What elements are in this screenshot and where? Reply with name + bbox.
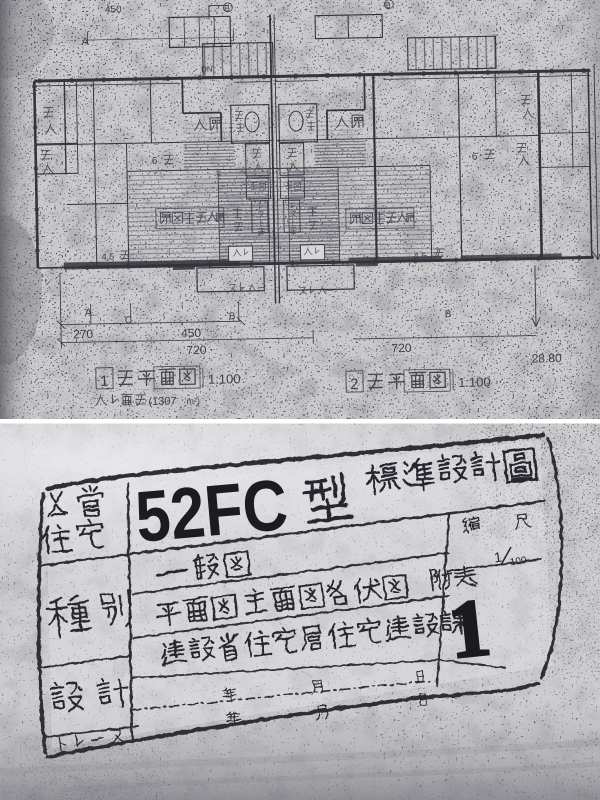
svg-text:m²): m²) <box>186 396 200 406</box>
svg-text:1: 1 <box>100 373 109 390</box>
svg-text:720: 720 <box>186 343 207 357</box>
svg-text:A: A <box>85 307 93 319</box>
svg-text:1:100: 1:100 <box>208 371 241 387</box>
svg-text:4.5: 4.5 <box>102 252 115 262</box>
svg-text:B: B <box>445 309 452 320</box>
svg-text:6: 6 <box>472 152 478 163</box>
svg-text:2: 2 <box>350 376 359 393</box>
svg-text:(1307: (1307 <box>148 395 176 408</box>
svg-text:450: 450 <box>181 326 202 340</box>
svg-text:B: B <box>229 311 236 322</box>
svg-text:52FC: 52FC <box>132 465 290 558</box>
svg-text:DN: DN <box>201 65 213 74</box>
svg-text:C: C <box>125 315 132 326</box>
svg-text:A: A <box>81 36 89 48</box>
svg-text:270: 270 <box>73 327 94 341</box>
svg-text:4.5: 4.5 <box>414 251 427 261</box>
svg-text:28.80: 28.80 <box>532 351 563 366</box>
svg-text:720: 720 <box>391 341 412 355</box>
svg-text:6: 6 <box>152 156 158 167</box>
svg-text:450: 450 <box>105 4 122 15</box>
svg-text:1:100: 1:100 <box>458 374 491 390</box>
